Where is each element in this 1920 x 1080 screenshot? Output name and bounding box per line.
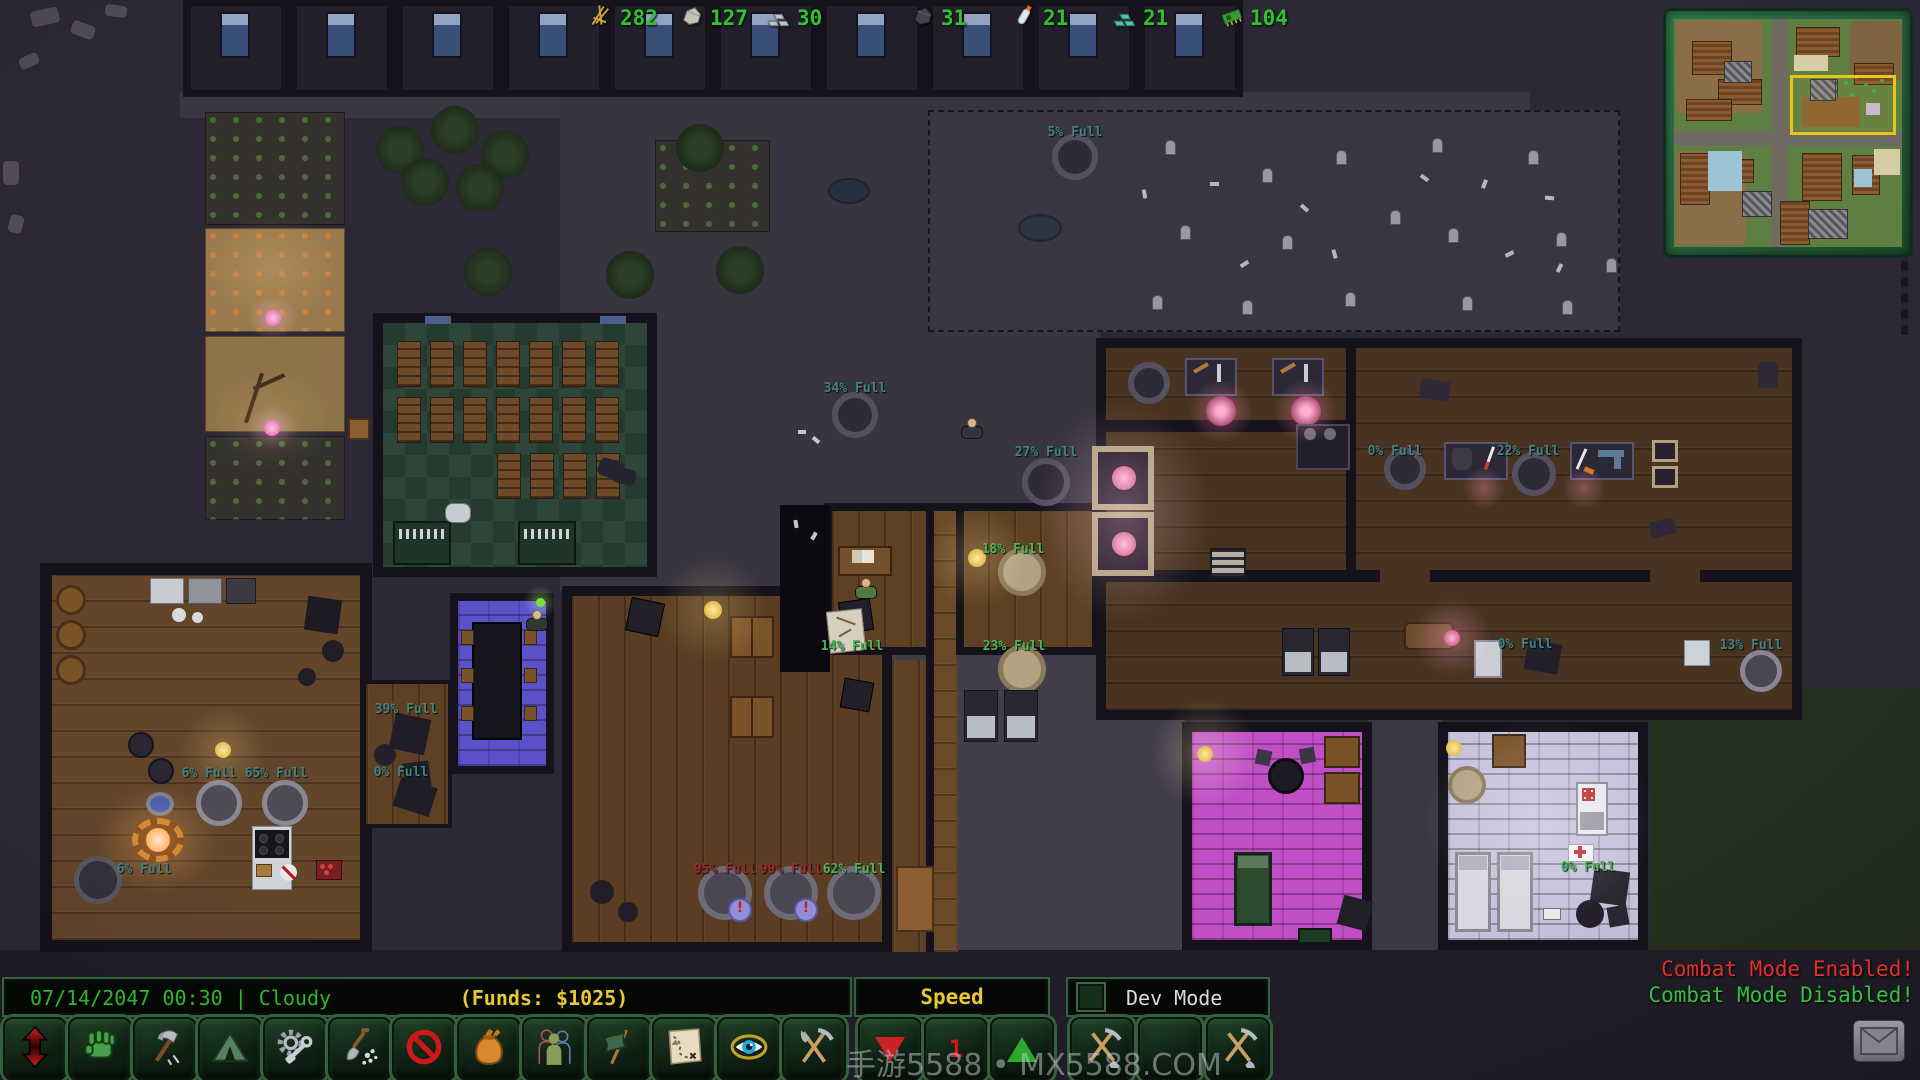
ceiling-lamp	[1446, 740, 1462, 756]
minimap-building	[1796, 27, 1840, 57]
blank-icon	[1149, 1026, 1191, 1072]
crafting-station[interactable]	[1185, 358, 1237, 396]
storage-label: 0% Full	[1561, 860, 1616, 875]
priority-arrows-icon	[14, 1026, 56, 1072]
furnace-fire	[146, 828, 170, 852]
storage-container[interactable]	[74, 856, 122, 904]
chair[interactable]	[524, 668, 537, 683]
machine-panel	[1285, 652, 1311, 672]
gravestone[interactable]	[1282, 235, 1293, 250]
cutting-board	[256, 864, 272, 877]
round-table-gray[interactable]	[196, 780, 242, 826]
storage-label: 39% Full	[375, 702, 438, 717]
storage-label: 23% Full	[983, 639, 1046, 654]
resource-value: 21	[1143, 6, 1168, 30]
status-bar-panel: 07/14/2047 00:30 | Cloudy (Funds: $1025)	[2, 977, 852, 1017]
storage-label: 34% Full	[824, 381, 887, 396]
pond	[828, 178, 870, 204]
dig-shovel-button[interactable]	[328, 1017, 392, 1080]
speed-panel-header: Speed	[854, 977, 1050, 1017]
dig-tools-icon	[1217, 1026, 1259, 1072]
storage-label: 0% Full	[1498, 637, 1553, 652]
harvest-tools-icon	[793, 1026, 835, 1072]
bed-pillow	[964, 14, 990, 25]
tree[interactable]	[464, 248, 512, 296]
resource-value: 31	[941, 6, 966, 30]
bones	[798, 430, 806, 434]
cabinet-drawer	[1580, 812, 1604, 830]
minimap-water	[1854, 169, 1872, 187]
storage-shelf[interactable]	[430, 341, 454, 387]
tree[interactable]	[401, 158, 449, 206]
wall	[956, 503, 964, 655]
rubble	[6, 212, 26, 235]
gravestone[interactable]	[1336, 150, 1347, 165]
chair[interactable]	[1255, 749, 1273, 767]
bed-pillow	[1459, 856, 1487, 870]
storage-label: 13% Full	[1720, 638, 1783, 653]
alert-badge: !	[728, 898, 752, 922]
resource-value: 30	[797, 6, 822, 30]
storage-label: 99% Full	[760, 862, 823, 877]
speed-up-button[interactable]	[990, 1017, 1054, 1080]
wine-rack[interactable]	[316, 860, 342, 880]
stone-icon	[678, 2, 705, 33]
harvest-tools-button[interactable]	[782, 1017, 846, 1080]
chair[interactable]	[461, 706, 474, 721]
crop-field[interactable]	[205, 436, 345, 520]
bed-pillow	[540, 14, 566, 25]
counter[interactable]	[188, 578, 222, 604]
wine-bottle	[324, 870, 329, 875]
chair[interactable]	[524, 630, 537, 645]
well-5[interactable]	[1052, 134, 1098, 180]
pot	[1576, 900, 1604, 928]
minimap-viewport[interactable]	[1790, 75, 1896, 135]
funds-label: (Funds: $1025)	[460, 986, 629, 1010]
bed-pillow	[858, 14, 884, 25]
storage-shelf[interactable]	[397, 397, 421, 443]
gravestone[interactable]	[1432, 138, 1443, 153]
barrel-dark	[128, 732, 154, 758]
workbench[interactable]	[393, 521, 451, 565]
branches-icon	[588, 2, 615, 33]
resource-value: 282	[620, 6, 658, 30]
crop-field[interactable]	[205, 112, 345, 225]
bed-pillow	[328, 14, 354, 25]
dark-table[interactable]	[304, 596, 342, 634]
burner	[275, 846, 284, 855]
storage-shelf[interactable]	[463, 397, 487, 443]
ceiling-lamp	[215, 742, 231, 758]
debris	[1758, 362, 1778, 388]
barrel[interactable]	[56, 655, 86, 685]
colonists-button[interactable]	[522, 1017, 586, 1080]
door-green[interactable]	[1298, 928, 1332, 944]
tree[interactable]	[431, 106, 479, 154]
glowing-specimen	[1112, 466, 1136, 490]
minimap-building	[1686, 99, 1732, 121]
glowing-specimen	[1112, 532, 1136, 556]
minimap-building-metal	[1808, 209, 1848, 239]
workbench[interactable]	[518, 521, 576, 565]
cross-h	[1584, 792, 1593, 797]
debris	[1419, 378, 1451, 402]
envelope-icon	[1860, 1027, 1898, 1055]
work-fist-button[interactable]	[68, 1017, 132, 1080]
person-head	[532, 610, 542, 620]
resource-counter-electronics: 104	[1218, 2, 1288, 33]
workbench-display	[399, 529, 445, 539]
machine-panel	[967, 716, 995, 738]
gravestone[interactable]	[1606, 258, 1617, 273]
forbid-sign-icon	[403, 1026, 445, 1072]
machine-panel	[1007, 716, 1035, 738]
world-map-button[interactable]	[652, 1017, 716, 1080]
mechanics-gear-icon	[274, 1026, 316, 1072]
gravestone[interactable]	[1242, 300, 1253, 315]
rubble	[68, 18, 98, 42]
camp-tent-icon	[209, 1026, 251, 1072]
storage-shelf[interactable]	[563, 453, 587, 499]
burner	[259, 834, 268, 843]
table[interactable]	[1492, 734, 1526, 768]
person-head	[861, 578, 871, 588]
rubble	[16, 50, 42, 72]
bones	[1210, 182, 1219, 186]
storage-container[interactable]	[1740, 650, 1782, 692]
gravestone[interactable]	[1562, 300, 1573, 315]
counter[interactable]	[150, 578, 184, 604]
dev-dig-tools-button[interactable]	[1070, 1017, 1134, 1080]
storage-shelf[interactable]	[397, 341, 421, 387]
machine-panel	[1321, 652, 1347, 672]
tree[interactable]	[606, 251, 654, 299]
rubble	[2, 160, 20, 186]
visibility-eye-icon	[728, 1026, 770, 1072]
barrel[interactable]	[56, 620, 86, 650]
round-table[interactable]	[1448, 766, 1486, 804]
speed-value-display: 1	[924, 1017, 988, 1080]
forbid-sign-button[interactable]	[392, 1017, 456, 1080]
picture-frame	[1652, 466, 1678, 488]
wine-bottle	[328, 864, 333, 869]
tree[interactable]	[716, 246, 764, 294]
gravestone[interactable]	[1345, 292, 1356, 307]
bed-pillow	[1238, 856, 1268, 868]
pipe	[1304, 428, 1316, 440]
speed-up-icon	[1007, 1037, 1037, 1062]
burner	[259, 846, 268, 855]
game-map[interactable]: 5% Full34% Full27% Full18% Full14% Full2…	[0, 0, 1920, 1080]
minimap-building-light	[1874, 149, 1900, 175]
picture-frame	[1652, 440, 1678, 462]
bed-pillow	[222, 14, 248, 25]
well-27[interactable]	[1022, 458, 1070, 506]
counter[interactable]	[226, 578, 256, 604]
workbench-display	[524, 529, 570, 539]
pond	[1018, 214, 1062, 242]
coal-icon	[909, 2, 936, 33]
game-screen: 5% Full34% Full27% Full18% Full14% Full2…	[0, 0, 1920, 1080]
storage-label: 95% Full	[694, 862, 757, 877]
gravestone[interactable]	[1528, 150, 1539, 165]
date-time: 07/14/2047 00:30	[30, 986, 223, 1010]
dev-mode-checkbox[interactable]	[1078, 984, 1104, 1010]
door-gap	[1380, 570, 1430, 582]
alert-badge: !	[794, 898, 818, 922]
status-dot-green	[536, 598, 545, 607]
storage-label: 0% Full	[374, 765, 429, 780]
white-crate[interactable]	[1684, 640, 1710, 666]
gravestone[interactable]	[1262, 168, 1273, 183]
resource-counter-coal: 31	[909, 2, 966, 33]
round-table-gray[interactable]	[262, 780, 308, 826]
barrel-dark	[148, 758, 174, 784]
resource-value: 104	[1250, 6, 1288, 30]
ceiling-lamp	[1197, 746, 1213, 762]
bed-pillow	[1501, 856, 1529, 870]
forge[interactable]	[1206, 396, 1236, 426]
combat-enabled-message: Combat Mode Enabled!	[1648, 956, 1914, 982]
storage-label: 27% Full	[1015, 445, 1078, 460]
cross-h	[1574, 850, 1586, 854]
round-table-dark[interactable]	[1268, 758, 1304, 794]
minimap-building	[1680, 153, 1710, 205]
staircase[interactable]	[1210, 548, 1246, 578]
long-table[interactable]	[472, 622, 522, 740]
pipe	[1324, 428, 1336, 440]
soil-plot[interactable]	[205, 336, 345, 432]
storage-shelf[interactable]	[529, 341, 553, 387]
colonists-icon	[533, 1026, 575, 1072]
gravestone[interactable]	[1390, 210, 1401, 225]
tag	[1543, 908, 1561, 920]
mechanics-gear-button[interactable]	[263, 1017, 327, 1080]
world-map-icon	[663, 1026, 705, 1072]
grass-patch	[1650, 688, 1920, 952]
plate	[172, 608, 186, 622]
resource-value: 21	[1043, 6, 1068, 30]
corridor-ground	[1368, 715, 1442, 952]
glowing-plant[interactable]	[265, 310, 281, 326]
forge-small	[1444, 630, 1460, 646]
no-sign-plate	[280, 864, 297, 881]
minimap-building-light	[1794, 55, 1828, 71]
resource-counter-branches: 282	[588, 2, 658, 33]
resource-counter-glass: 21	[1111, 2, 1168, 33]
storage-shelf[interactable]	[529, 397, 553, 443]
person-head	[967, 418, 977, 428]
water-icon	[1011, 2, 1038, 33]
ceiling-lamp	[704, 601, 722, 619]
dev-mode-panel: Dev Mode	[1066, 977, 1270, 1017]
storage-label: 5% Full	[1048, 125, 1103, 140]
dev-blank-button[interactable]	[1138, 1017, 1202, 1080]
storage-shelf[interactable]	[562, 341, 586, 387]
speed-down-icon	[875, 1037, 905, 1062]
chip-icon	[1218, 2, 1245, 33]
minimap-building-metal	[1742, 191, 1772, 217]
stockpile-sack-icon	[468, 1026, 510, 1072]
pot	[590, 880, 614, 904]
storage-shelf[interactable]	[463, 341, 487, 387]
crate[interactable]	[348, 418, 370, 440]
combat-disabled-message: Combat Mode Disabled!	[1648, 982, 1914, 1008]
gravestone[interactable]	[1462, 296, 1473, 311]
pot	[618, 902, 638, 922]
missions-flag-button[interactable]	[587, 1017, 651, 1080]
speed-down-button[interactable]	[858, 1017, 922, 1080]
dig-shovel-icon	[339, 1026, 381, 1072]
plate	[192, 612, 203, 623]
chair[interactable]	[461, 668, 474, 683]
bed-pillow	[1070, 14, 1096, 25]
storage-label: 6% Full	[182, 766, 237, 781]
workshop-well[interactable]	[1128, 362, 1170, 404]
speed-value: 1	[949, 1035, 963, 1063]
rubble	[103, 2, 129, 19]
weather: Cloudy	[259, 986, 331, 1010]
tree[interactable]	[456, 164, 504, 212]
open-book	[852, 550, 874, 563]
storage-shelf[interactable]	[430, 397, 454, 443]
storage-label: 22% Full	[1497, 444, 1560, 459]
storage-label: 18% Full	[982, 542, 1045, 557]
well-34[interactable]	[832, 392, 878, 438]
minimap-building	[1802, 153, 1842, 201]
storage-label: 62% Full	[823, 862, 886, 877]
gravestone[interactable]	[1180, 225, 1191, 240]
resource-counter-stone: 127	[678, 2, 748, 33]
rubble	[28, 5, 61, 29]
storage-label: 0% Full	[1368, 444, 1423, 459]
door-gap	[1650, 570, 1700, 582]
pallet[interactable]	[625, 597, 665, 637]
bed-pillow	[1176, 14, 1202, 25]
camp-tent-button[interactable]	[198, 1017, 262, 1080]
combat-messages: Combat Mode Enabled! Combat Mode Disable…	[1648, 956, 1914, 1008]
crafting-station[interactable]	[1272, 358, 1324, 396]
pallet[interactable]	[389, 713, 432, 756]
storage-label: 14% Full	[821, 639, 884, 654]
gravestone[interactable]	[1152, 295, 1163, 310]
bed-pillow	[434, 14, 460, 25]
speed-title: Speed	[920, 985, 983, 1009]
stockpile-sack-button[interactable]	[457, 1017, 521, 1080]
station-tool	[1217, 364, 1221, 382]
burner	[275, 834, 284, 843]
gravestone[interactable]	[1165, 140, 1176, 155]
forge[interactable]	[1291, 396, 1321, 426]
build-hammer-button[interactable]	[133, 1017, 197, 1080]
storage-shelf[interactable]	[595, 397, 619, 443]
tree[interactable]	[676, 124, 724, 172]
armor-piece	[1452, 448, 1472, 470]
barrel[interactable]	[56, 585, 86, 615]
chair[interactable]	[461, 630, 474, 645]
hallway-floor	[934, 511, 956, 952]
gravestone[interactable]	[1448, 228, 1459, 243]
dev-mode-label: Dev Mode	[1126, 986, 1222, 1010]
build-hammer-icon	[144, 1026, 186, 1072]
dig-tools-icon	[1081, 1026, 1123, 1072]
gravestone[interactable]	[1556, 232, 1567, 247]
minimap-water	[1708, 151, 1742, 191]
resource-counter-metal: 30	[765, 2, 822, 33]
crate-large[interactable]	[896, 866, 934, 932]
table-split	[751, 616, 753, 658]
pallet[interactable]	[840, 678, 875, 713]
resource-counter-water: 21	[1011, 2, 1068, 33]
minimap-building-metal	[1724, 61, 1752, 83]
wine-bottle	[320, 864, 325, 869]
white-pot	[445, 503, 471, 523]
glass-icon	[1111, 2, 1138, 33]
missions-flag-icon	[598, 1026, 640, 1072]
status-text: 07/14/2047 00:30 | Cloudy	[30, 986, 331, 1010]
metal-icon	[765, 2, 792, 33]
gun-grip	[1614, 455, 1621, 469]
blue-pot[interactable]	[146, 792, 174, 816]
storage-shelf[interactable]	[595, 341, 619, 387]
table[interactable]	[1324, 736, 1360, 768]
minimap[interactable]	[1663, 8, 1913, 258]
visibility-eye-button[interactable]	[717, 1017, 781, 1080]
vent	[600, 316, 626, 324]
storage-label: 65% Full	[245, 766, 308, 781]
storage-shelf[interactable]	[496, 341, 520, 387]
storage-shelf[interactable]	[562, 397, 586, 443]
status-separator: |	[235, 986, 247, 1010]
minimap-building	[1780, 201, 1810, 245]
priority-arrows-button[interactable]	[3, 1017, 67, 1080]
bones	[1545, 196, 1554, 201]
work-fist-icon	[79, 1026, 121, 1072]
glowing-plant[interactable]	[264, 420, 280, 436]
storage-shelf[interactable]	[497, 453, 521, 499]
chair[interactable]	[1299, 747, 1316, 764]
mail-button[interactable]	[1853, 1020, 1905, 1062]
chair[interactable]	[524, 706, 537, 721]
storage-label: 6% Full	[117, 862, 172, 877]
dev-dig-tools-button[interactable]	[1206, 1017, 1270, 1080]
pallet[interactable]	[1606, 904, 1629, 927]
table-split	[751, 696, 753, 738]
pot	[298, 668, 316, 686]
pot	[374, 744, 396, 766]
vent	[425, 316, 451, 324]
resource-value: 127	[710, 6, 748, 30]
storage-shelf[interactable]	[530, 453, 554, 499]
pot	[322, 640, 344, 662]
table[interactable]	[1324, 772, 1360, 804]
storage-shelf[interactable]	[496, 397, 520, 443]
station-tool	[1304, 364, 1308, 382]
